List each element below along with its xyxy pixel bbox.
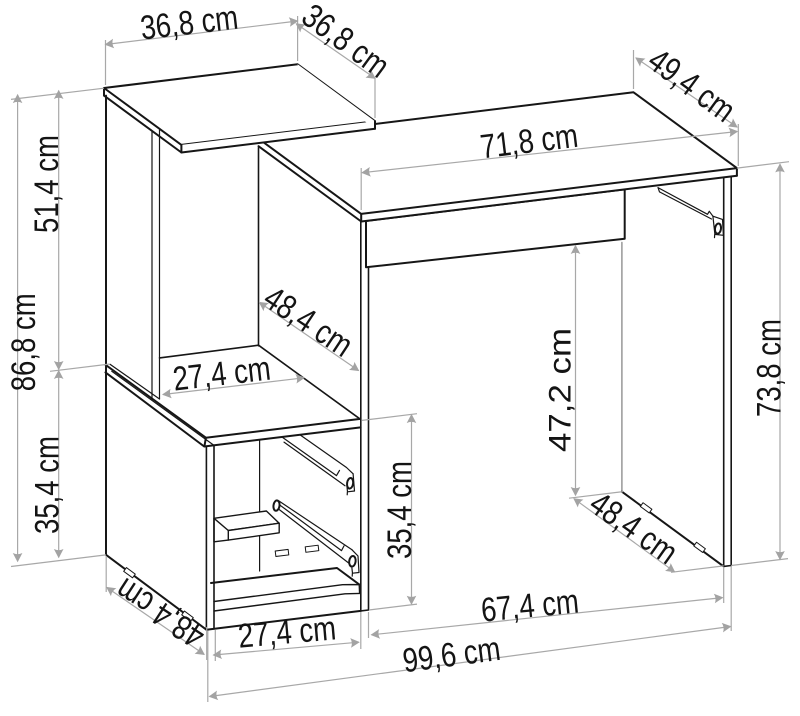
svg-text:51,4 cm: 51,4 cm [28, 135, 66, 233]
svg-text:86,8 cm: 86,8 cm [5, 293, 43, 391]
svg-text:35,4 cm: 35,4 cm [29, 436, 67, 534]
svg-text:47,2 cm: 47,2 cm [542, 328, 578, 452]
svg-text:35,4 cm: 35,4 cm [381, 461, 419, 559]
svg-text:73,8 cm: 73,8 cm [751, 319, 789, 417]
